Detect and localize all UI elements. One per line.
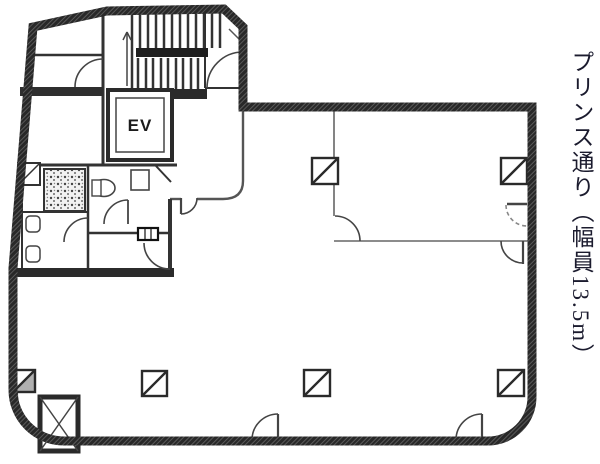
- toilet-tank: [92, 180, 101, 196]
- column: [312, 158, 338, 184]
- column: [501, 158, 527, 184]
- column: [142, 371, 167, 396]
- stair-landing: [136, 48, 208, 57]
- urinal-1: [26, 216, 40, 232]
- sink-counter: [138, 228, 158, 240]
- column: [498, 370, 524, 396]
- column: [304, 370, 330, 396]
- urinal-2: [26, 246, 40, 262]
- elevator-label: EV: [128, 116, 153, 135]
- floor-plan-drawing: EV: [0, 0, 600, 464]
- street-label: プリンス通り（幅員13.5m）: [563, 50, 597, 454]
- washbasin: [131, 170, 149, 190]
- floor-plan: EV: [0, 0, 600, 464]
- elevator: EV: [108, 90, 172, 160]
- shaft-stipple-area: [44, 169, 85, 211]
